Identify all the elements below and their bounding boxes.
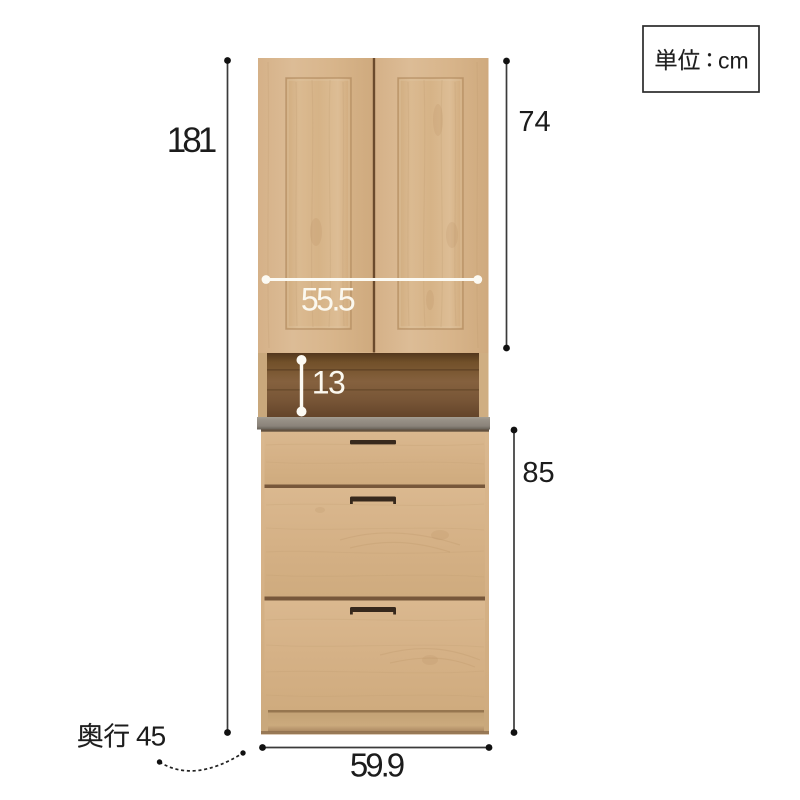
- svg-text:74: 74: [518, 106, 550, 138]
- svg-text:59.9: 59.9: [350, 747, 404, 784]
- svg-text:55.5: 55.5: [301, 282, 355, 318]
- svg-text:45: 45: [136, 721, 166, 752]
- svg-text:181: 181: [167, 121, 216, 160]
- svg-text:cm: cm: [718, 48, 749, 74]
- svg-text:85: 85: [522, 457, 554, 489]
- svg-text:13: 13: [312, 365, 345, 401]
